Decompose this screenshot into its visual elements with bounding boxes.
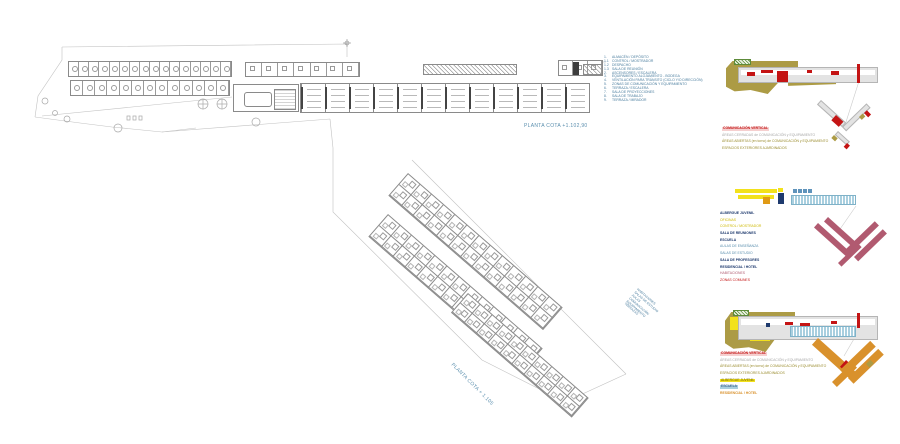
legend-item-label: ALBERGUE JUVENIL: [720, 379, 755, 383]
school-block: [793, 189, 797, 193]
planted-hatch: [734, 59, 751, 65]
legend-line: ESPACIOS EXTERIORES AJARDINADOS: [720, 372, 826, 376]
legend-item-label: ALBERGUE JUVENIL: [720, 212, 754, 216]
wing-bar: [842, 103, 871, 131]
end-core: [857, 313, 860, 328]
legend-item-label: ÁREAS ABIERTAS (en torno) de COMUNICACIÓ…: [722, 140, 828, 144]
vertical-core: [831, 321, 837, 324]
legend-line: ÁREAS CERRADAS de COMUNICACIÓN y EQUIPAM…: [722, 134, 828, 138]
legend-item-label: RESIDENCIAL / HOTEL: [720, 392, 757, 396]
legend-item-label: HABITACIONES: [720, 272, 745, 276]
albergue-bar: [735, 189, 777, 193]
school-bar: [790, 326, 856, 337]
legend-line: RESIDENCIAL / HOTEL: [720, 392, 826, 396]
school-blocks: [793, 189, 812, 193]
legend-line: ESCUELA: [720, 239, 761, 243]
legend-line: SALAS DE ESTUDIO: [720, 252, 761, 256]
legend-item-label: SALA DE REUNIONES: [720, 232, 756, 236]
diagram-program-middle: ALBERGUE JUVENILOFICINASCONTROL / MOSTRA…: [718, 183, 900, 300]
legend-item-label: COMUNICACIÓN VERTICAL: [722, 127, 769, 131]
legend-item-label: COMUNICACIÓN VERTICAL: [720, 352, 767, 356]
legend-item-label: AULAS DE ENSEÑANZA: [720, 245, 758, 249]
legend-line: COMUNICACIÓN VERTICAL: [722, 127, 828, 131]
legend-line: ÁREAS CERRADAS de COMUNICACIÓN y EQUIPAM…: [720, 359, 826, 363]
office-block: [763, 197, 770, 204]
legend-item-label: CONTROL / MOSTRADOR: [720, 225, 761, 229]
legend-item-label: SALAS DE ESTUDIO: [720, 252, 753, 256]
garden-tip: [859, 114, 865, 120]
legend-item-label: ESCUELA: [720, 239, 736, 243]
legend-line: ALBERGUE JUVENIL: [720, 212, 761, 216]
legend-line: SALA DE REUNIONES: [720, 232, 761, 236]
legend-item-label: ESCUELA: [720, 385, 738, 389]
vertical-core: [777, 71, 788, 82]
residential-wing-3: [451, 293, 589, 418]
legend-item-label: ÁREAS CERRADAS de COMUNICACIÓN y EQUIPAM…: [722, 134, 815, 138]
legend-line: RESIDENCIAL / HOTEL: [720, 266, 761, 270]
school-block: [803, 189, 807, 193]
legend-line: ÁREAS ABIERTAS (en torno) de COMUNICACIÓ…: [720, 365, 826, 369]
legend-item-label: OFICINAS: [720, 219, 736, 223]
albergue-block: [778, 188, 783, 192]
legend-line: ÁREAS ABIERTAS (en torno) de COMUNICACIÓ…: [722, 140, 828, 144]
vertical-core: [761, 70, 773, 73]
legend-line: ESPACIOS EXTERIORES AJARDINADOS: [722, 147, 828, 151]
core-block: [778, 193, 784, 204]
diagram2-legend: ALBERGUE JUVENILOFICINASCONTROL / MOSTRA…: [720, 212, 761, 282]
legend-item-label: SALA DE PROFESORES: [720, 259, 759, 263]
legend-line: SALA DE PROFESORES: [720, 259, 761, 263]
vertical-core: [747, 72, 755, 76]
core-block: [766, 323, 770, 327]
legend-line: ALBERGUE JUVENIL: [720, 379, 826, 383]
wing-core: [844, 143, 850, 149]
school-block: [808, 189, 812, 193]
legend-line: ESCUELA: [720, 385, 826, 389]
wing-row: [452, 303, 579, 416]
legend-item-label: ÁREAS CERRADAS de COMUNICACIÓN y EQUIPAM…: [720, 359, 813, 363]
legend-line: CONTROL / MOSTRADOR: [720, 225, 761, 229]
legend-line: HABITACIONES: [720, 272, 761, 276]
vertical-core: [807, 70, 812, 73]
diagram1-legend: COMUNICACIÓN VERTICALÁREAS CERRADAS de C…: [722, 127, 828, 151]
legend-item-label: ZONAS COMUNES: [720, 279, 750, 283]
legend-item-label: ÁREAS ABIERTAS (en torno) de COMUNICACIÓ…: [720, 365, 826, 369]
legend-item-label: ESPACIOS EXTERIORES AJARDINADOS: [720, 372, 785, 376]
legend-line: ZONAS COMUNES: [720, 279, 761, 283]
legend-line: AULAS DE ENSEÑANZA: [720, 245, 761, 249]
legend-line: OFICINAS: [720, 219, 761, 223]
school-bar: [791, 195, 856, 205]
rotated-notes: HABITACIONESSALAS DE ESTUDIOAULASCOMUNIC…: [623, 288, 661, 325]
legend-item-label: RESIDENCIAL / HOTEL: [720, 266, 757, 270]
vertical-core: [785, 322, 793, 325]
vertical-core: [831, 71, 839, 75]
diagram-communication-upper: COMUNICACIÓN VERTICALÁREAS CERRADAS de C…: [718, 55, 900, 167]
legend-line: COMUNICACIÓN VERTICAL: [720, 352, 826, 356]
drawing-sheet: PLANTA COTA +1.102,90 1.ALMACÉN / DEPÓSI…: [0, 0, 900, 444]
school-block: [798, 189, 802, 193]
lower-plan-label: PLANTA COTA + 1.105: [450, 362, 495, 407]
legend-item-label: ESPACIOS EXTERIORES AJARDINADOS: [722, 147, 787, 151]
end-core: [857, 64, 860, 83]
diagram3-legend: COMUNICACIÓN VERTICALÁREAS CERRADAS de C…: [720, 352, 826, 396]
diagram-program-lower: COMUNICACIÓN VERTICALÁREAS CERRADAS de C…: [718, 308, 900, 423]
